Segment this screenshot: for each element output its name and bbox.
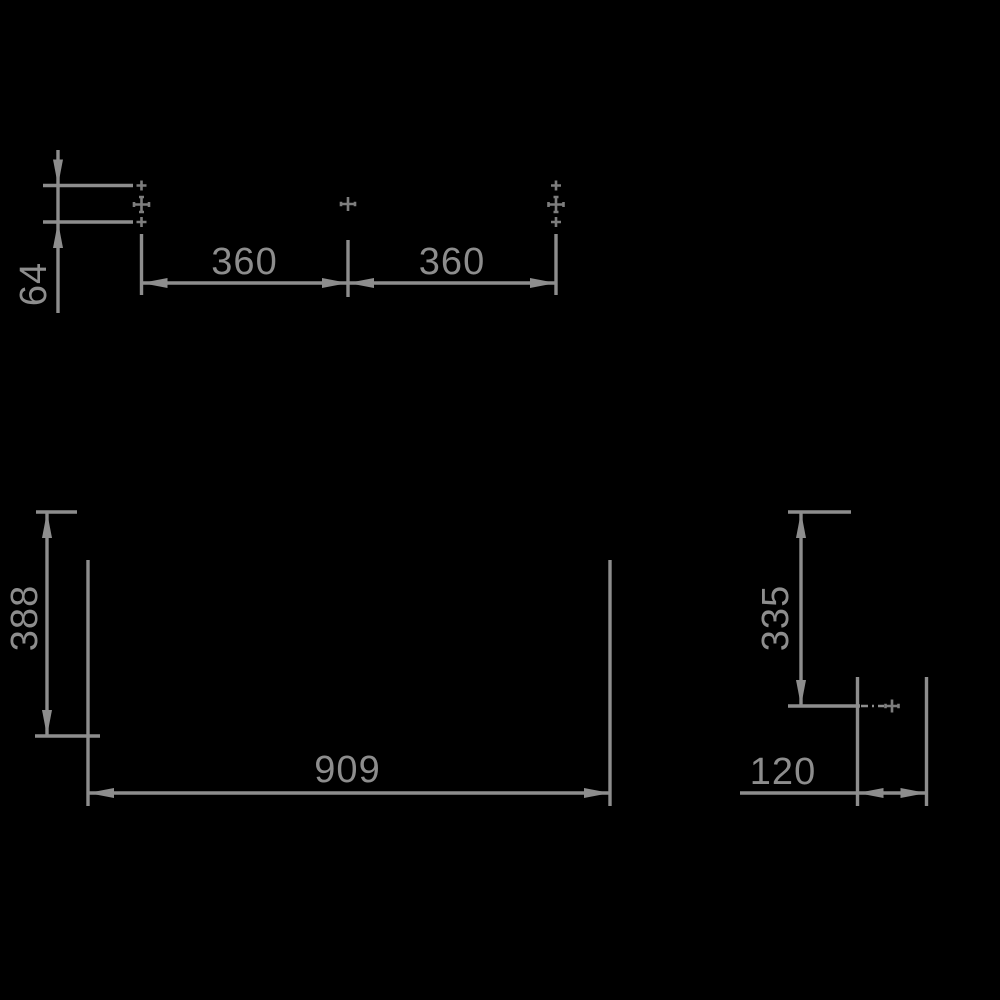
dim-360-right-label: 360 bbox=[419, 241, 485, 283]
dim-335-label: 335 bbox=[755, 585, 797, 651]
dim-360-left-label: 360 bbox=[211, 241, 277, 283]
drawing-canvas: 64 360 360 bbox=[0, 0, 1000, 1000]
dim-909-label: 909 bbox=[314, 749, 380, 791]
dim-388-label: 388 bbox=[4, 585, 46, 651]
dim-120-label: 120 bbox=[750, 751, 816, 793]
dim-64-label: 64 bbox=[13, 262, 55, 306]
drawing-background bbox=[0, 0, 1000, 1000]
dimension-drawing: 64 360 360 bbox=[0, 0, 1000, 1000]
